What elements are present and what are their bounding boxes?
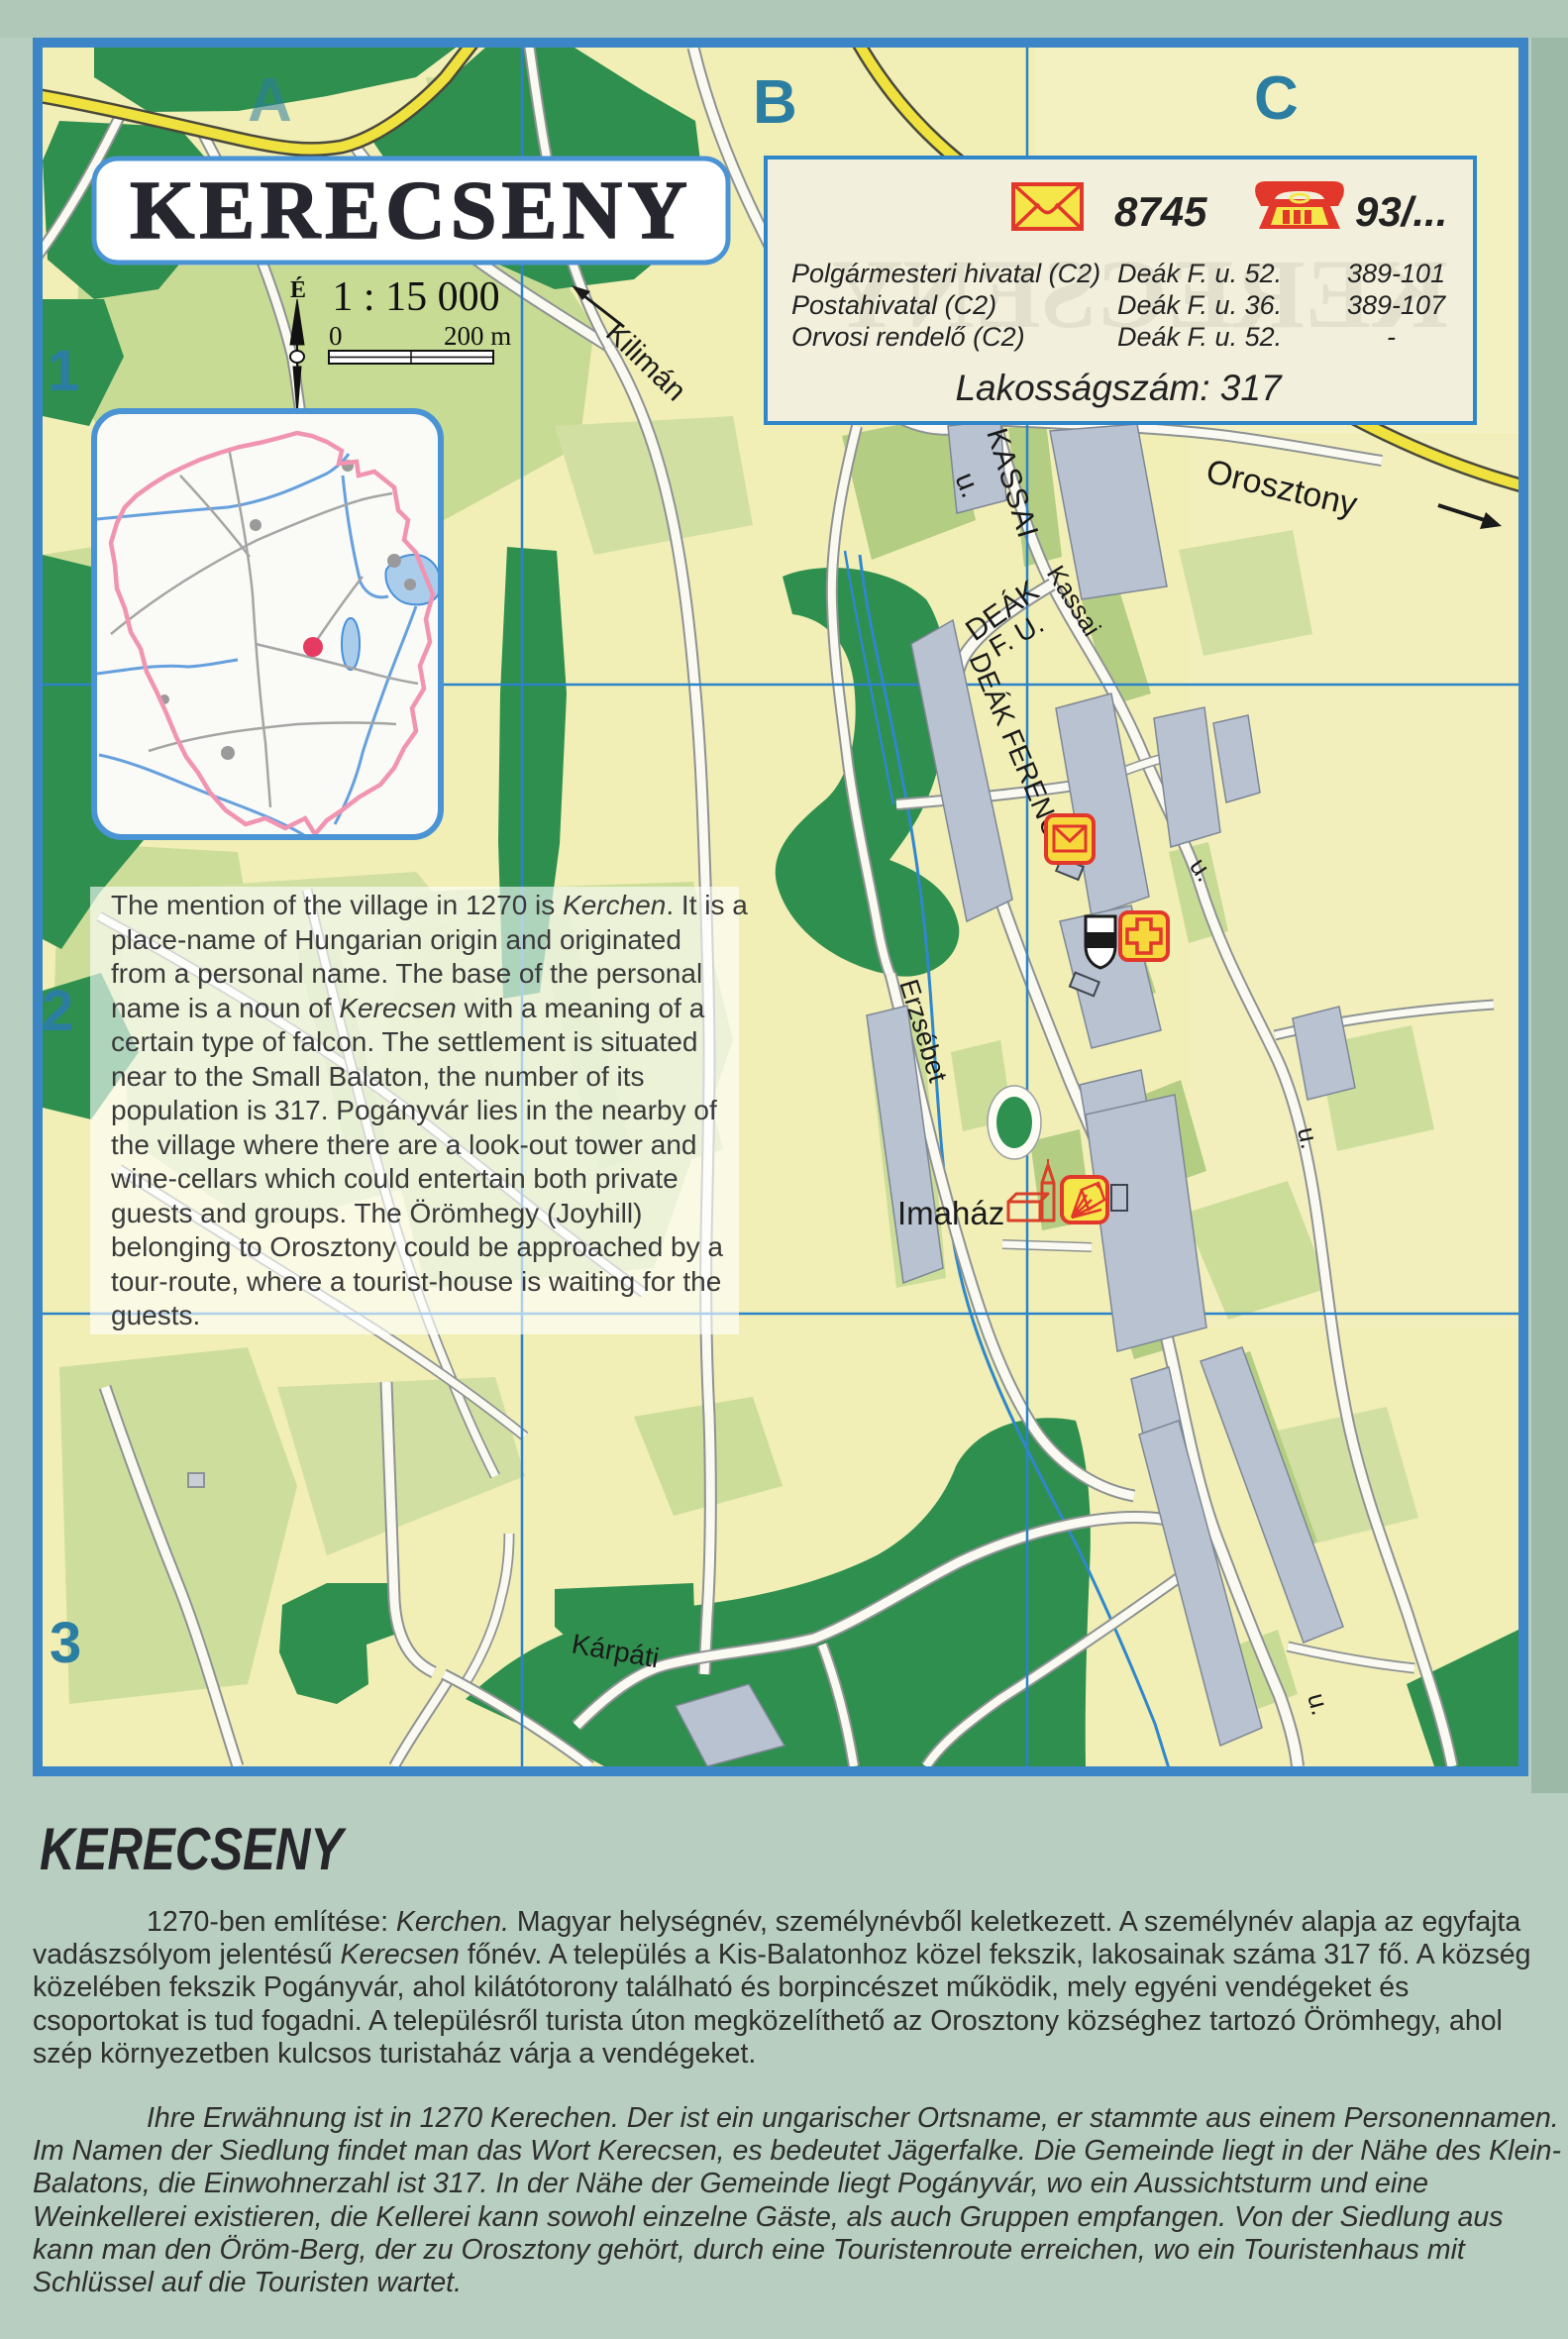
svg-text:Imaház: Imaház (897, 1195, 1004, 1231)
svg-text:93/...: 93/... (1355, 188, 1447, 235)
svg-text:0: 0 (329, 321, 343, 351)
svg-text:200 m: 200 m (444, 321, 511, 351)
svg-text:2: 2 (42, 979, 73, 1043)
svg-text:Orvosi rendelő (C2): Orvosi rendelő (C2) (791, 322, 1025, 352)
svg-text:389-101: 389-101 (1347, 259, 1445, 288)
svg-text:1 : 15 000: 1 : 15 000 (332, 274, 499, 320)
svg-text:Postahivatal (C2): Postahivatal (C2) (791, 290, 996, 320)
svg-text:Polgármesteri hivatal (C2): Polgármesteri hivatal (C2) (791, 259, 1100, 288)
svg-text:8745: 8745 (1114, 188, 1207, 235)
svg-text:É: É (290, 277, 306, 303)
svg-text:C: C (1254, 64, 1299, 133)
svg-text:KERECSENY: KERECSENY (130, 164, 692, 257)
svg-text:-: - (1387, 322, 1396, 352)
svg-text:389-107: 389-107 (1347, 290, 1446, 320)
svg-text:B: B (753, 68, 797, 137)
svg-text:A: A (248, 66, 292, 135)
svg-text:Deák F. u. 52.: Deák F. u. 52. (1117, 322, 1282, 352)
svg-text:1: 1 (48, 339, 79, 403)
svg-text:Deák F. u. 52.: Deák F. u. 52. (1117, 259, 1282, 288)
svg-text:3: 3 (50, 1611, 81, 1675)
svg-text:Deák F. u. 36.: Deák F. u. 36. (1117, 290, 1282, 320)
svg-text:Lakosságszám: 317: Lakosságszám: 317 (955, 368, 1283, 408)
